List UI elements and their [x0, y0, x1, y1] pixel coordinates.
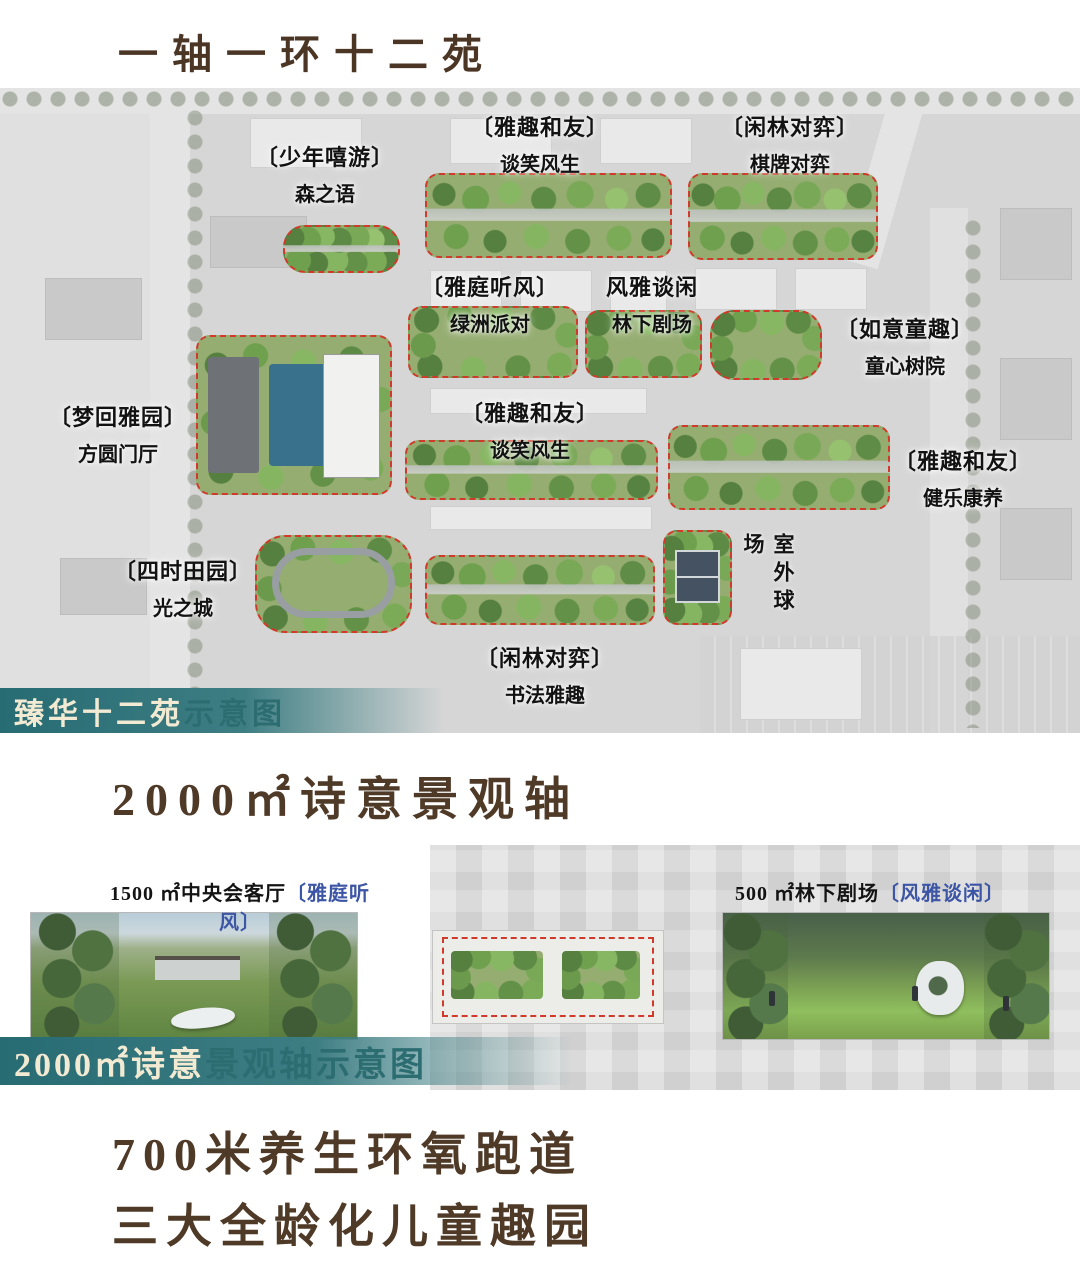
tree-column-right [984, 913, 1049, 1039]
map-caption-bar: 臻华十二苑 示意图 [0, 688, 444, 733]
zone-label-yaqu-east: 〔雅趣和友〕 健乐康养 [863, 444, 1063, 511]
zone-chess-north [688, 173, 878, 260]
zone-label-menghui: 〔梦回雅园〕 方圆门厅 [18, 400, 218, 467]
ball-court [675, 550, 719, 603]
zone-outdoor-court [663, 530, 732, 625]
building-block [430, 506, 652, 530]
zone-label-sishi: 〔四时田园〕 光之城 [83, 554, 283, 621]
zone-label-xianlin-south: 〔闲林对弈〕 书法雅趣 [445, 641, 645, 708]
photo-left-label: 1500 ㎡中央会客厅〔雅庭听风〕 [100, 877, 380, 935]
building-block [795, 268, 867, 310]
mini-green-east [562, 951, 640, 999]
person-figure [912, 986, 918, 1001]
clubhouse-building [323, 354, 381, 478]
site-plan-map: 〔少年嘻游〕 森之语 〔雅趣和友〕 谈笑风生 〔闲林对弈〕 棋牌对弈 〔雅庭听风… [0, 88, 1080, 733]
building-block [1000, 358, 1072, 440]
person-figure [1003, 996, 1009, 1011]
zone-forest-whisper [283, 225, 400, 273]
lawn-sculpture [170, 1004, 236, 1031]
page-title: 一轴一环十二苑 [118, 22, 496, 80]
building-block [740, 648, 862, 720]
footer-line-kids-parks: 三大全龄化儿童趣园 [112, 1190, 598, 1256]
photo-forest-theater [722, 912, 1050, 1040]
zone-label-yaqu-north: 〔雅趣和友〕 谈笑风生 [440, 110, 640, 177]
poster-page: 一轴一环十二苑 [0, 0, 1080, 1277]
zone-laughter-north [425, 173, 672, 258]
zone-label-fengya: 风雅谈闲 林下剧场 [552, 270, 752, 337]
zone-label-xianlin-north: 〔闲林对弈〕 棋牌对弈 [690, 110, 890, 177]
zone-label-outdoor-court: 室外球场 [738, 533, 798, 643]
map-caption-highlight: 臻华十二苑 [14, 689, 184, 733]
axis-caption-bar: 2000㎡诗意 景观轴示意图 [0, 1037, 574, 1085]
footer-line-jogging-track: 700米养生环氧跑道 [112, 1118, 583, 1184]
mini-green-west [451, 951, 543, 999]
axis-caption-rest: 景观轴示意图 [205, 1037, 427, 1086]
building-block [45, 278, 142, 340]
zone-dream-garden [196, 335, 392, 495]
tree-row-top [0, 90, 1080, 110]
person-figure [769, 991, 775, 1006]
ring-sculpture [916, 961, 964, 1015]
tree-column-left [723, 913, 788, 1039]
zone-label-ruyi: 〔如意童趣〕 童心树院 [805, 312, 1005, 379]
building-block [1000, 508, 1072, 580]
map-caption-rest: 示意图 [184, 689, 286, 733]
axis-caption-highlight: 2000㎡诗意 [14, 1037, 205, 1086]
zone-label-yaqu-mid: 〔雅趣和友〕 谈笑风生 [430, 396, 630, 463]
building-block [1000, 208, 1072, 280]
photo-right-label: 500 ㎡林下剧场〔风雅谈闲〕 [720, 877, 1020, 906]
landscape-axis-heading: 2000㎡诗意景观轴 [112, 763, 580, 829]
garden-gate [155, 956, 240, 980]
loop-track [272, 548, 394, 618]
zone-calligraphy [425, 555, 655, 625]
axis-mini-plan [432, 930, 664, 1024]
zone-label-shaonianxiyou: 〔少年嘻游〕 森之语 [225, 140, 425, 207]
zone-wellness [668, 425, 890, 510]
